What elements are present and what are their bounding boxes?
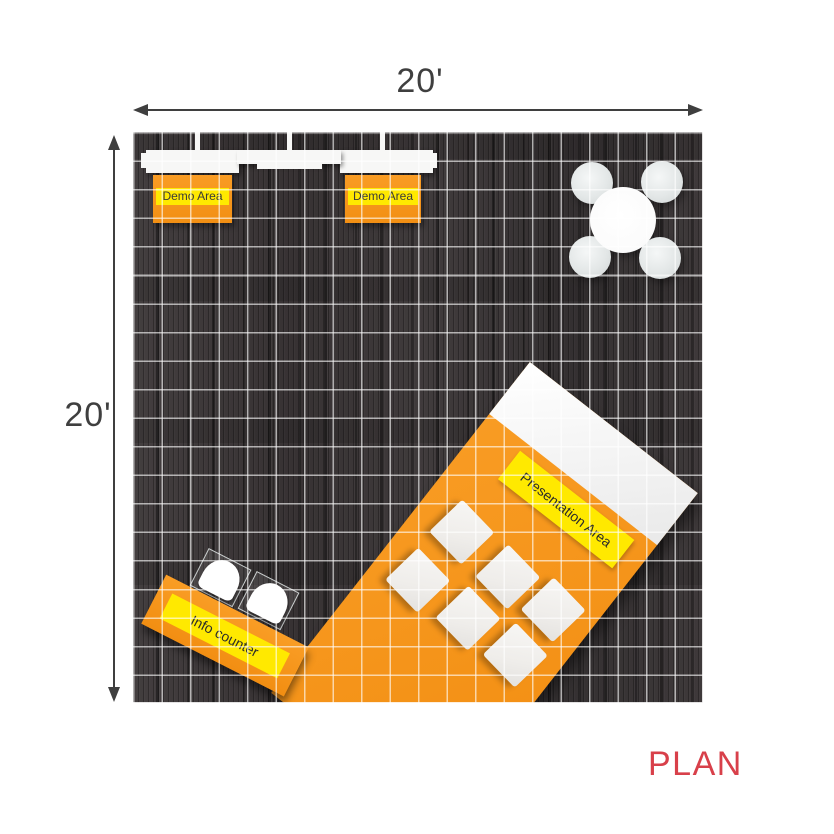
demo-area-counter-2: Demo Area <box>345 175 421 223</box>
booth-floor: Demo Area Demo Area Presentation Area <box>133 132 703 703</box>
plan-caption: PLAN <box>648 745 743 784</box>
width-dimension-label: 20' <box>385 62 455 101</box>
wall-end-cap <box>432 153 437 168</box>
arrowhead-left-icon <box>133 104 148 116</box>
height-dimension-label: 20' <box>60 396 116 435</box>
round-table <box>590 187 656 253</box>
seat-cube <box>429 500 494 565</box>
back-wall-shelf <box>257 164 322 169</box>
booth-floor-plan: 20' 20' Demo Area Demo Area <box>0 0 834 834</box>
presentation-area: Presentation Area <box>271 362 697 703</box>
wall-post <box>380 132 385 151</box>
seat-cube <box>385 548 450 613</box>
back-wall-segment-right <box>340 150 433 173</box>
meeting-table-set <box>563 157 683 287</box>
wall-end-cap <box>141 153 146 168</box>
back-wall-segment-left <box>146 150 239 173</box>
demo-area-counter-1: Demo Area <box>153 175 232 223</box>
wall-post <box>287 132 292 151</box>
demo-area-1-label: Demo Area <box>156 188 229 205</box>
seat-cube <box>435 586 500 651</box>
back-wall-middle <box>237 150 341 164</box>
arrowhead-down-icon <box>108 687 120 702</box>
height-dimension-arrow <box>113 138 115 699</box>
demo-area-2-label: Demo Area <box>348 188 418 205</box>
arrowhead-up-icon <box>108 135 120 150</box>
seat-cube <box>483 623 548 688</box>
wall-post <box>195 132 200 151</box>
arrowhead-right-icon <box>688 104 703 116</box>
width-dimension-arrow <box>136 109 700 111</box>
